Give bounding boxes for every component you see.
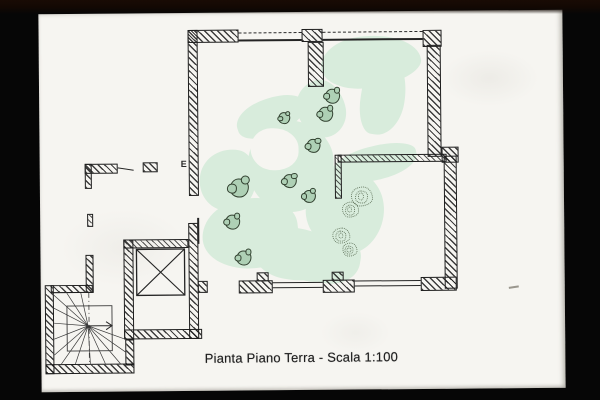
photo-of-floor-plan: E Pianta Piano Terra - Scala 1:100 (0, 0, 600, 400)
door-label: E (181, 159, 187, 169)
plan-caption: Pianta Piano Terra - Scala 1:100 (161, 349, 441, 366)
paper-sheet: E Pianta Piano Terra - Scala 1:100 (38, 10, 565, 393)
stair-and-fixture-linework (38, 10, 565, 393)
